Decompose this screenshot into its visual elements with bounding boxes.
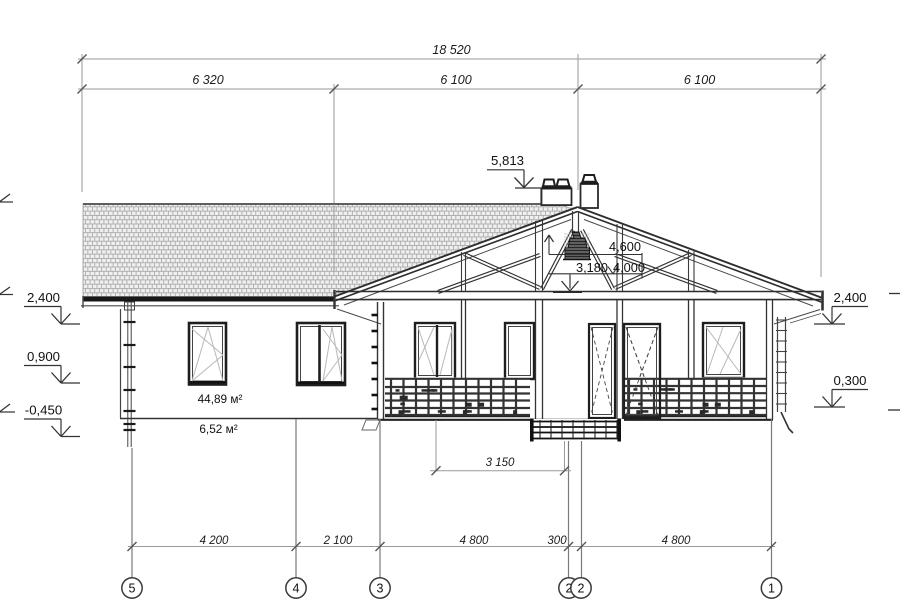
- svg-text:4,000: 4,000: [613, 260, 645, 275]
- svg-text:4 200: 4 200: [200, 535, 229, 547]
- svg-text:2,400: 2,400: [27, 290, 60, 305]
- svg-text:0,300: 0,300: [833, 373, 866, 388]
- svg-text:5: 5: [129, 582, 136, 596]
- svg-text:300: 300: [547, 535, 567, 547]
- svg-text:3,180: 3,180: [576, 260, 608, 275]
- svg-text:6 320: 6 320: [192, 73, 223, 87]
- svg-text:-0,450: -0,450: [25, 403, 62, 418]
- svg-text:2 100: 2 100: [323, 535, 353, 547]
- svg-text:6,52 м²: 6,52 м²: [199, 422, 237, 436]
- svg-text:44,89 м²: 44,89 м²: [198, 392, 243, 406]
- svg-text:3: 3: [377, 582, 384, 596]
- svg-text:6 100: 6 100: [684, 73, 715, 87]
- svg-text:4,600: 4,600: [609, 239, 641, 254]
- svg-text:0,900: 0,900: [27, 349, 60, 364]
- svg-text:6 100: 6 100: [440, 73, 471, 87]
- svg-text:2,400: 2,400: [833, 290, 866, 305]
- svg-text:4: 4: [293, 582, 300, 596]
- svg-text:5,813: 5,813: [491, 153, 524, 168]
- svg-text:4 800: 4 800: [662, 535, 691, 547]
- svg-text:18 520: 18 520: [432, 43, 470, 57]
- svg-text:3 150: 3 150: [486, 457, 515, 469]
- svg-text:2: 2: [578, 582, 585, 596]
- svg-text:4 800: 4 800: [460, 535, 489, 547]
- svg-text:1: 1: [768, 582, 775, 596]
